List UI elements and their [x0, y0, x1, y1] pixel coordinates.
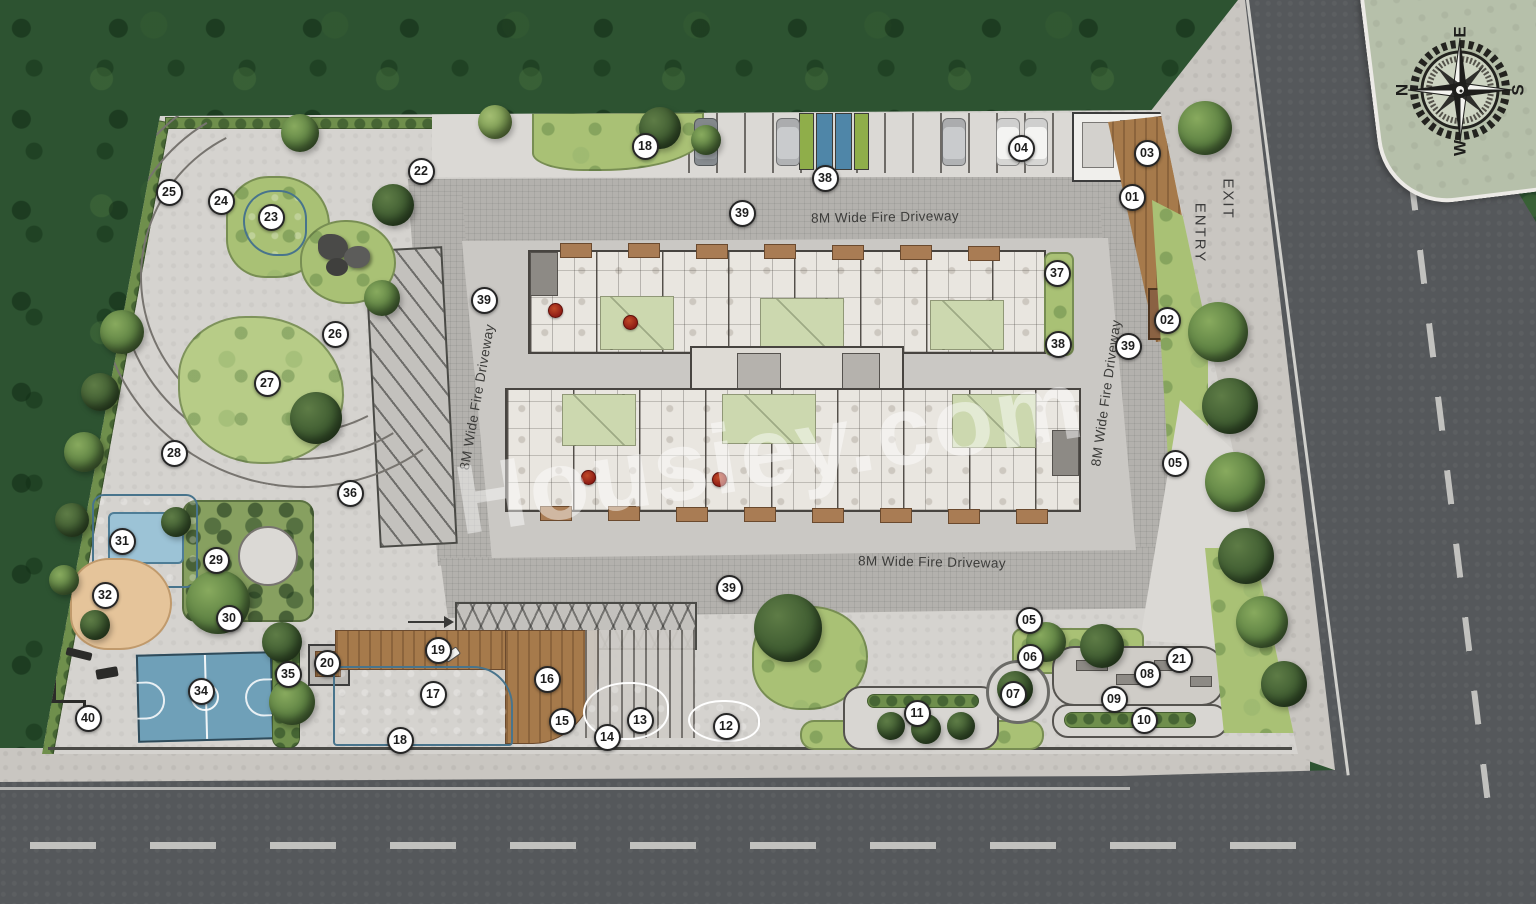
- plan-marker-21: 21: [1166, 646, 1193, 673]
- plan-marker-27: 27: [254, 370, 281, 397]
- plan-marker-13: 13: [627, 707, 654, 734]
- plan-marker-36: 36: [337, 480, 364, 507]
- plan-marker-03: 03: [1134, 140, 1161, 167]
- plan-marker-15: 15: [549, 708, 576, 735]
- plan-marker-10: 10: [1131, 707, 1158, 734]
- plan-marker-18: 18: [632, 133, 659, 160]
- plan-marker-22: 22: [408, 158, 435, 185]
- plan-marker-28: 28: [161, 440, 188, 467]
- plan-marker-16: 16: [534, 666, 561, 693]
- plan-marker-37: 37: [1044, 260, 1071, 287]
- plan-marker-02: 02: [1154, 307, 1181, 334]
- plan-marker-31: 31: [109, 528, 136, 555]
- plan-marker-06: 06: [1017, 644, 1044, 671]
- site-plan-canvas: E S W N ENTRY EXIT 8M Wide Fire Driveway…: [0, 0, 1536, 904]
- plan-marker-40: 40: [75, 705, 102, 732]
- plan-marker-23: 23: [258, 204, 285, 231]
- plan-marker-24: 24: [208, 188, 235, 215]
- plan-marker-12: 12: [713, 713, 740, 740]
- plan-marker-19: 19: [425, 637, 452, 664]
- plan-marker-04: 04: [1008, 135, 1035, 162]
- plan-marker-11: 11: [904, 700, 931, 727]
- plan-marker-34: 34: [188, 678, 215, 705]
- plan-marker-01: 01: [1119, 184, 1146, 211]
- plan-marker-32: 32: [92, 582, 119, 609]
- plan-marker-38: 38: [1045, 331, 1072, 358]
- plan-marker-17: 17: [420, 681, 447, 708]
- plan-marker-26: 26: [322, 321, 349, 348]
- plan-marker-39: 39: [716, 575, 743, 602]
- plan-marker-35: 35: [275, 661, 302, 688]
- plan-marker-25: 25: [156, 179, 183, 206]
- plan-marker-38: 38: [812, 165, 839, 192]
- plan-marker-30: 30: [216, 605, 243, 632]
- plan-marker-07: 07: [1000, 681, 1027, 708]
- plan-marker-05: 05: [1162, 450, 1189, 477]
- plan-marker-20: 20: [314, 650, 341, 677]
- markers-layer: 0102030405050607080910111213141516171818…: [0, 0, 1536, 904]
- plan-marker-14: 14: [594, 724, 621, 751]
- plan-marker-39: 39: [729, 200, 756, 227]
- plan-marker-18: 18: [387, 727, 414, 754]
- plan-marker-08: 08: [1134, 661, 1161, 688]
- plan-marker-09: 09: [1101, 686, 1128, 713]
- plan-marker-29: 29: [203, 547, 230, 574]
- plan-marker-39: 39: [471, 287, 498, 314]
- plan-marker-05: 05: [1016, 607, 1043, 634]
- plan-marker-39: 39: [1115, 333, 1142, 360]
